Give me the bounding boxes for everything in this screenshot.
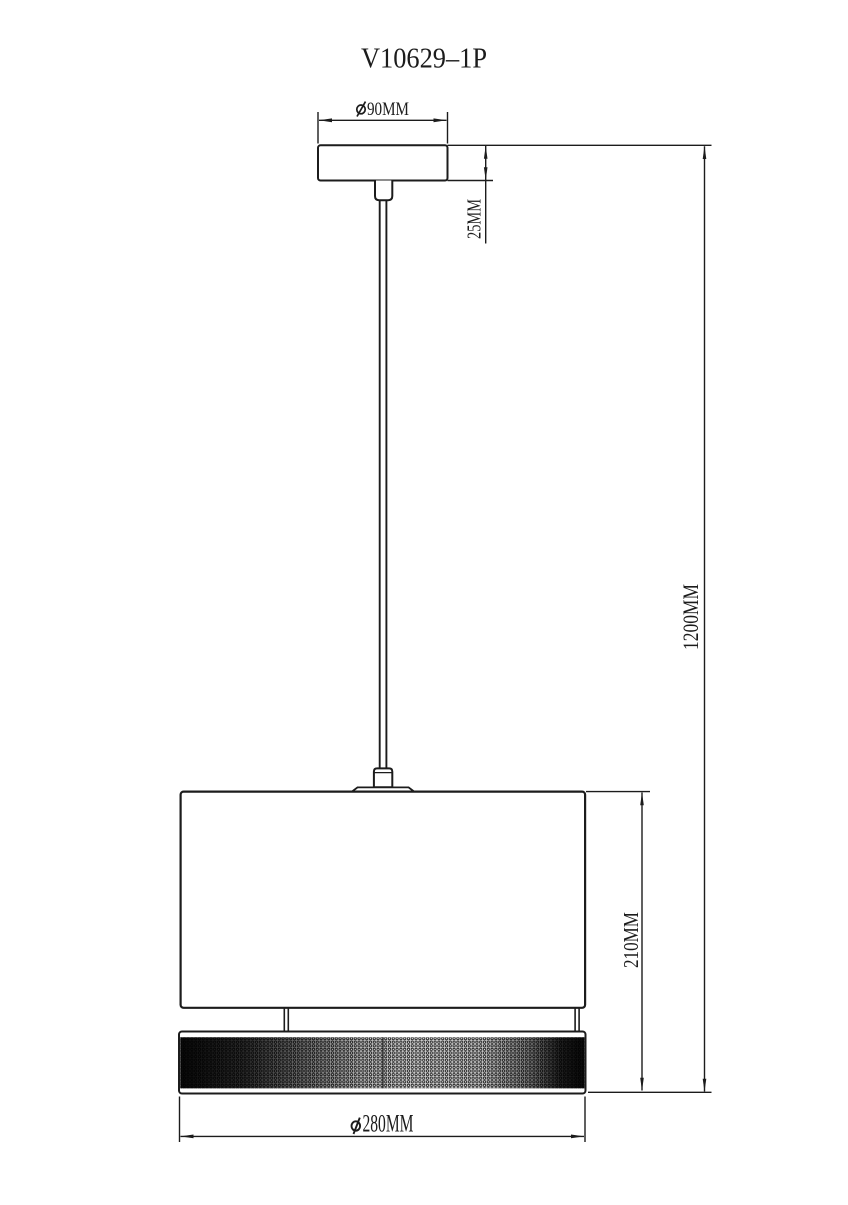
svg-text:280MM: 280MM — [363, 1109, 414, 1138]
svg-text:V10629–1P: V10629–1P — [361, 44, 487, 75]
svg-text:25MM: 25MM — [464, 199, 486, 239]
svg-text:1200MM: 1200MM — [678, 584, 703, 650]
svg-text:210MM: 210MM — [619, 912, 643, 968]
svg-text:90MM: 90MM — [367, 100, 409, 120]
